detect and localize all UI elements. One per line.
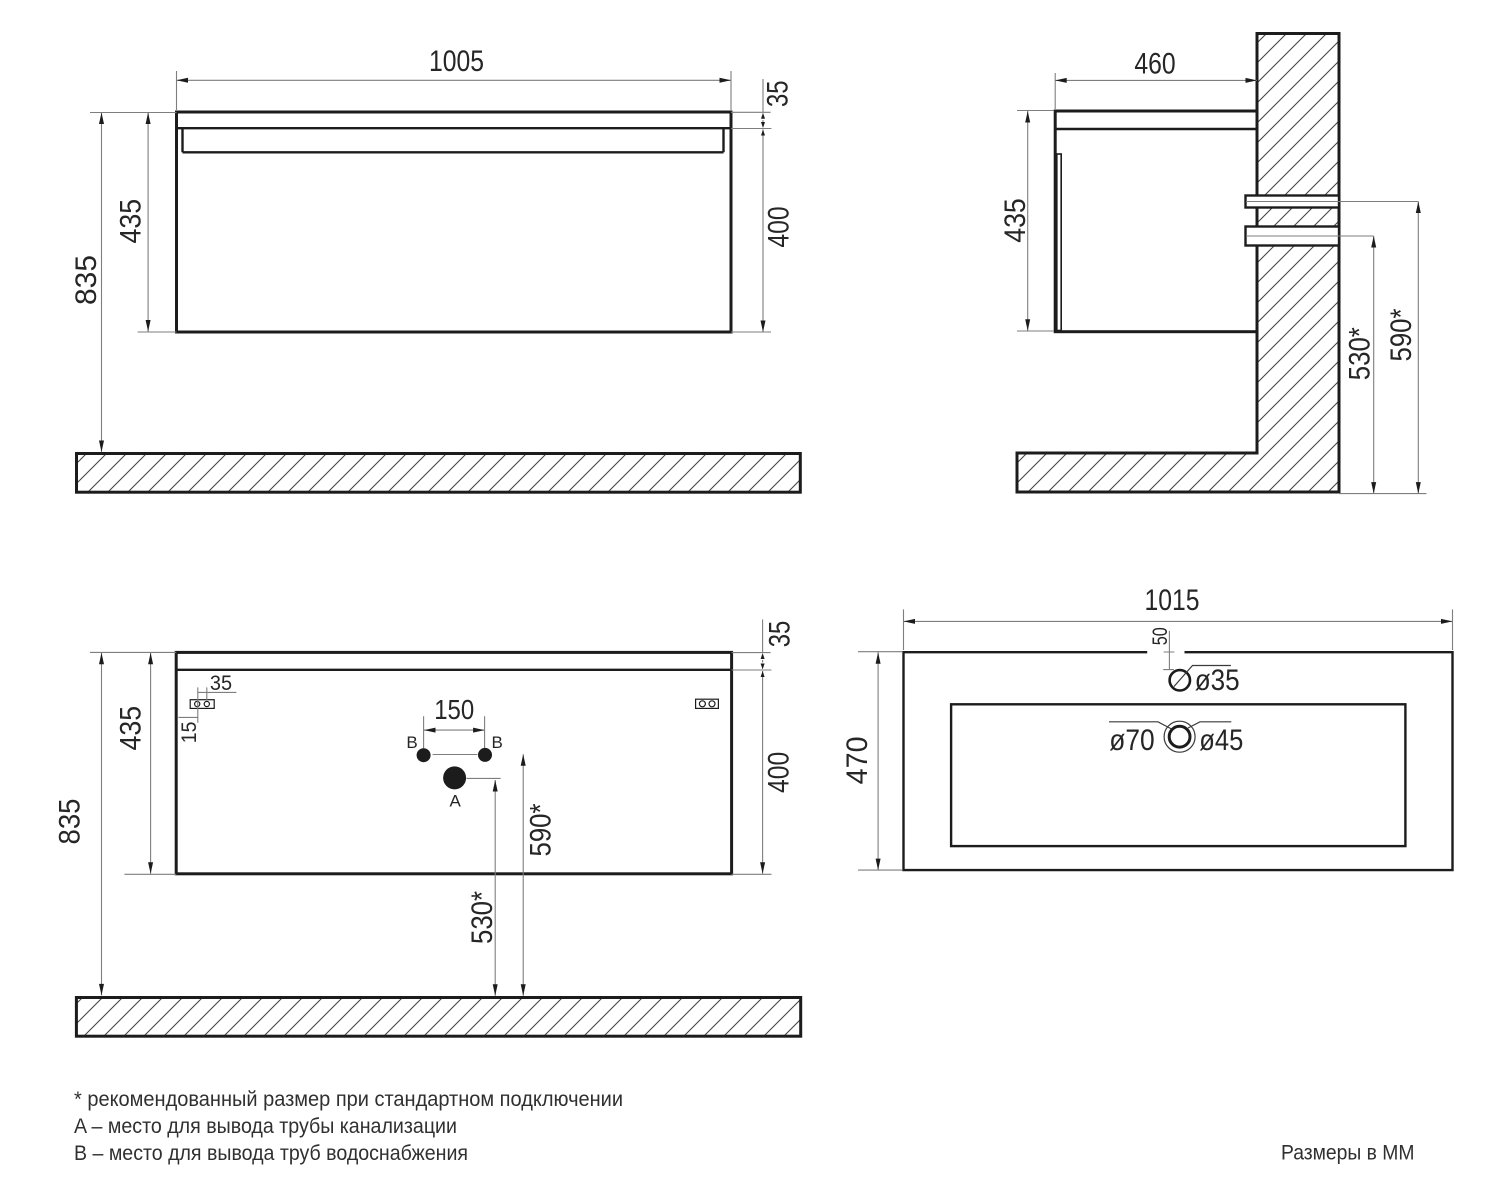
svg-text:1015: 1015 — [1145, 584, 1200, 617]
svg-text:470: 470 — [841, 736, 874, 784]
svg-text:B: B — [492, 733, 503, 752]
svg-text:435: 435 — [999, 198, 1032, 243]
svg-text:530*: 530* — [466, 891, 499, 944]
svg-text:ø35: ø35 — [1195, 664, 1240, 697]
svg-text:ø70: ø70 — [1109, 724, 1154, 757]
svg-text:35: 35 — [764, 621, 797, 648]
svg-text:35: 35 — [210, 672, 232, 695]
svg-text:* рекомендованный размер при с: * рекомендованный размер при стандартном… — [74, 1087, 623, 1111]
svg-text:Размеры в ММ: Размеры в ММ — [1281, 1141, 1415, 1165]
svg-text:A – место для вывода трубы кан: A – место для вывода трубы канализации — [74, 1114, 457, 1138]
svg-text:A: A — [450, 792, 462, 811]
svg-text:B – место для вывода труб водо: B – место для вывода труб водоснабжения — [74, 1141, 468, 1165]
svg-text:400: 400 — [763, 206, 796, 247]
svg-text:835: 835 — [70, 255, 103, 305]
svg-text:15: 15 — [178, 722, 201, 744]
svg-text:590*: 590* — [1385, 308, 1418, 361]
svg-text:435: 435 — [114, 706, 147, 751]
svg-text:50: 50 — [1149, 627, 1172, 645]
svg-text:35: 35 — [762, 81, 795, 108]
svg-text:530*: 530* — [1344, 327, 1377, 380]
svg-text:150: 150 — [434, 694, 474, 725]
svg-text:400: 400 — [763, 752, 796, 793]
svg-text:590*: 590* — [524, 803, 557, 856]
svg-text:460: 460 — [1134, 48, 1175, 81]
svg-text:1005: 1005 — [429, 45, 484, 78]
svg-text:B: B — [406, 733, 417, 752]
svg-text:ø45: ø45 — [1199, 724, 1243, 757]
svg-text:435: 435 — [114, 199, 147, 244]
svg-text:835: 835 — [53, 799, 86, 845]
